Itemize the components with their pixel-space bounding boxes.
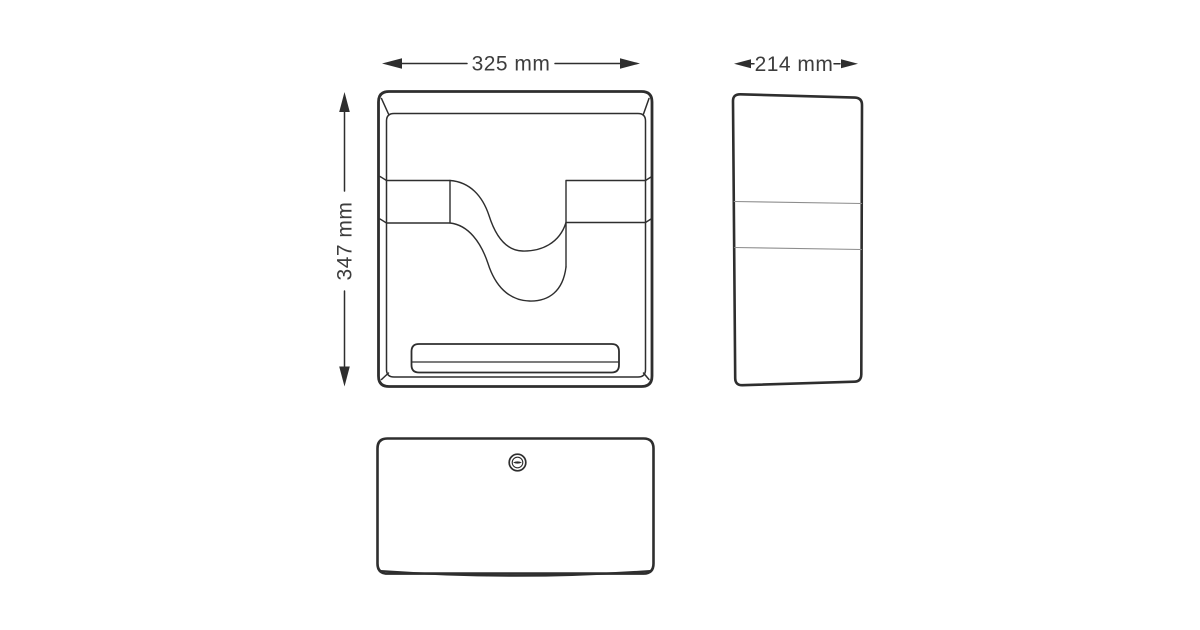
front-outer-shell xyxy=(379,92,653,387)
dispenser-dimension-drawing: 325 mm 214 mm 347 mm xyxy=(0,0,1200,630)
depth-dimension-label: 214 mm xyxy=(755,53,834,76)
technical-drawing-canvas: 325 mm 214 mm 347 mm xyxy=(0,0,1200,630)
side-view xyxy=(733,94,862,385)
front-view xyxy=(379,92,653,387)
paper-window-band-lines xyxy=(380,177,651,268)
paper-window-lower-wave xyxy=(450,223,566,301)
top-outline xyxy=(378,439,654,574)
arrowhead-left xyxy=(382,58,402,69)
top-view xyxy=(378,439,654,576)
arrowhead-bottom xyxy=(339,367,350,387)
line-art xyxy=(339,58,862,576)
arrowhead-top xyxy=(339,92,350,112)
lock-icon xyxy=(509,454,526,471)
front-corner-bevels xyxy=(382,99,650,380)
side-outline xyxy=(733,94,862,385)
dimension-labels: 325 mm 214 mm 347 mm xyxy=(334,53,834,281)
side-seam-lines xyxy=(734,202,861,250)
arrowhead-right xyxy=(841,59,858,68)
dispense-slot xyxy=(412,344,620,373)
height-dimension-label: 347 mm xyxy=(334,202,357,281)
width-dimension-label: 325 mm xyxy=(472,53,551,76)
arrowhead-left xyxy=(734,59,751,68)
paper-window-upper-wave xyxy=(450,181,566,252)
lock-key-slot xyxy=(513,461,522,463)
side-seam-upper xyxy=(734,202,861,204)
front-inner-panel xyxy=(387,114,646,378)
arrowhead-right xyxy=(620,58,640,69)
side-seam-lower xyxy=(735,248,862,250)
